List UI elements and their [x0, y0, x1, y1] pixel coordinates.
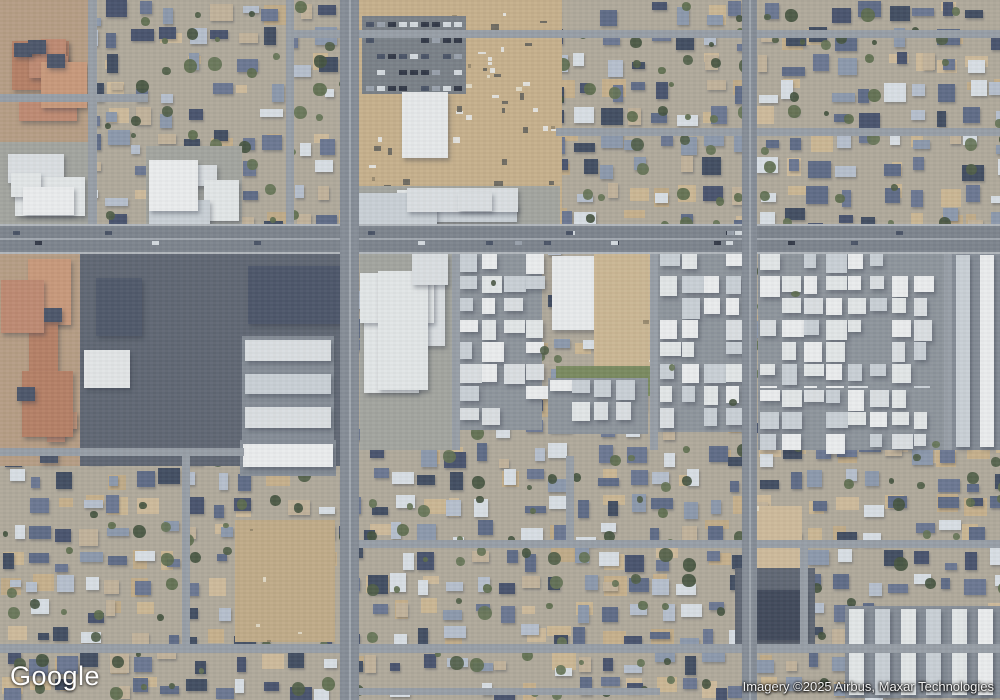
apartment-roof [682, 320, 698, 338]
street [290, 30, 1000, 38]
tree [456, 557, 465, 566]
tree [133, 525, 146, 538]
apartment-roof [460, 276, 477, 289]
house-roof [295, 185, 304, 198]
tree [418, 505, 430, 517]
parked-car [454, 22, 462, 27]
house-roof [585, 575, 597, 590]
house-roof [766, 140, 779, 148]
house-roof [262, 135, 281, 150]
apartment-roof [892, 342, 905, 362]
apartment-roof [760, 390, 780, 401]
apartment-roof [504, 364, 525, 384]
dark-roof [17, 387, 35, 401]
house-roof [598, 478, 619, 485]
apartment-roof [526, 364, 544, 380]
tree [821, 40, 831, 50]
debris [468, 64, 471, 68]
parked-car [399, 54, 407, 59]
house-roof [131, 145, 141, 154]
tree [573, 473, 581, 481]
tree [472, 476, 485, 489]
house-roof [324, 659, 337, 669]
house-roof [444, 626, 466, 638]
house-roof [392, 472, 413, 484]
house-roof [832, 93, 855, 102]
house-roof [707, 551, 720, 561]
house-roof [991, 212, 1000, 225]
dirt-lot [235, 520, 335, 642]
apartment-roof [482, 320, 496, 340]
house-roof [941, 578, 950, 589]
parked-car [410, 70, 418, 75]
apartment-roof [526, 254, 544, 274]
house-roof [808, 550, 829, 565]
sidewalk [0, 252, 1000, 254]
vehicle [368, 231, 375, 235]
house-roof [55, 529, 71, 542]
vehicle [566, 231, 573, 235]
house-roof [683, 678, 696, 688]
tree [478, 606, 492, 620]
house-roof [685, 656, 696, 675]
house-roof [650, 632, 670, 639]
tree [637, 659, 645, 667]
commercial-roof [458, 192, 492, 212]
apartment-roof [682, 364, 699, 383]
house-roof [372, 507, 388, 515]
house-roof [213, 83, 233, 95]
parked-car [443, 86, 451, 91]
tree [166, 578, 178, 590]
vehicle [714, 241, 721, 245]
apartment-roof [726, 408, 744, 425]
apartment-roof [914, 276, 934, 292]
tree [141, 684, 147, 690]
apartment-roof [726, 364, 743, 382]
satellite-map-viewport[interactable]: Google Imagery ©2025 Airbus, Maxar Techn… [0, 0, 1000, 700]
tree [683, 446, 690, 453]
house-roof [859, 113, 880, 129]
tree [162, 67, 171, 76]
house-roof [759, 95, 777, 103]
house-roof [10, 469, 25, 481]
apartment-roof [826, 342, 845, 362]
house-roof [807, 470, 821, 487]
apartment-roof [782, 276, 801, 292]
house-roof [189, 109, 203, 121]
google-logo[interactable]: Google [10, 661, 100, 692]
tree [294, 503, 303, 512]
house-roof [264, 27, 276, 45]
house-roof [288, 651, 305, 668]
tree [764, 14, 770, 20]
tree [273, 53, 280, 60]
tree [706, 145, 716, 155]
house-roof [163, 8, 173, 24]
apartment-roof [660, 276, 677, 296]
apartment-roof [460, 342, 472, 359]
tree [66, 547, 73, 554]
house-roof [499, 459, 509, 467]
house-roof [210, 4, 232, 21]
house-roof [968, 60, 985, 73]
tree [785, 9, 798, 22]
apartment-roof [892, 276, 908, 297]
house-roof [320, 139, 335, 155]
house-roof [443, 610, 462, 620]
yard-patch [836, 497, 859, 510]
house-roof [913, 140, 930, 149]
house-roof [53, 627, 68, 640]
house-roof [760, 454, 774, 467]
parked-car [443, 54, 451, 59]
house-roof [584, 159, 598, 175]
storage-item [540, 21, 546, 24]
house-roof [238, 474, 251, 491]
dirt-lot [594, 254, 652, 366]
tree [967, 472, 979, 484]
tree [711, 58, 721, 68]
tree [131, 116, 141, 126]
house-roof [912, 84, 925, 96]
apartment-roof [804, 390, 824, 402]
tree [630, 37, 642, 49]
house-roof [554, 339, 570, 349]
house-roof [504, 469, 516, 484]
house-roof [786, 661, 797, 672]
tree [187, 28, 198, 39]
dark-roof [47, 54, 65, 68]
house-roof [135, 551, 155, 561]
tree [110, 687, 124, 700]
tree [682, 574, 695, 587]
apartment-roof [804, 298, 823, 314]
debris [298, 632, 302, 634]
house-roof [652, 579, 668, 595]
house-roof [789, 159, 799, 171]
house-roof [424, 654, 436, 668]
apartment-roof [550, 380, 572, 391]
street [0, 448, 244, 456]
apartment-roof [682, 298, 700, 319]
parked-car [377, 70, 385, 75]
house-roof [884, 164, 901, 176]
house-roof [684, 502, 698, 518]
apartment-roof [482, 254, 497, 269]
street [182, 456, 190, 646]
tree [800, 39, 806, 45]
apartment-roof [892, 412, 909, 425]
tree [709, 42, 715, 48]
tree [628, 455, 634, 461]
house-roof [813, 501, 827, 511]
debris [267, 640, 272, 642]
house-roof [578, 500, 589, 518]
apartment-roof [848, 298, 866, 314]
debris [250, 529, 254, 531]
storage-item [502, 108, 505, 114]
house-roof [325, 89, 334, 97]
house-roof [140, 1, 153, 14]
tree [760, 191, 770, 201]
vehicle [544, 241, 551, 245]
house-roof [631, 470, 648, 485]
apartment-roof [594, 402, 608, 420]
apartment-roof [504, 298, 523, 311]
tree [397, 524, 409, 536]
tree [658, 106, 668, 116]
sidewalk [0, 224, 1000, 226]
house-roof [105, 198, 128, 206]
tree [90, 511, 97, 518]
apartment-roof [914, 298, 927, 316]
building-roof [552, 256, 598, 330]
house-roof [243, 191, 259, 200]
apartment-roof [804, 342, 822, 362]
house-roof [608, 183, 618, 197]
apartment-roof [870, 364, 886, 376]
parked-car [454, 38, 462, 43]
tree [658, 508, 668, 518]
tree [476, 496, 484, 504]
apartment-roof [704, 298, 720, 314]
yard-patch [421, 598, 436, 613]
house-roof [450, 472, 463, 489]
house-roof [991, 37, 1000, 50]
tree [995, 119, 1000, 128]
tree [522, 548, 532, 558]
vehicle [13, 231, 20, 235]
lane-stripe [349, 0, 351, 700]
house-roof [108, 130, 130, 144]
street [348, 688, 660, 695]
house-roof [923, 53, 935, 69]
house-roof [501, 606, 516, 623]
apartment-roof [804, 364, 824, 376]
house-roof [390, 663, 399, 671]
storage-item [491, 24, 499, 30]
house-roof [912, 8, 934, 16]
house-roof [681, 156, 693, 172]
apartment-roof [760, 254, 780, 270]
tree [965, 138, 977, 150]
house-roof [996, 145, 1000, 154]
tree [407, 503, 414, 510]
house-roof [865, 471, 879, 486]
apartment-roof [826, 254, 847, 273]
parked-car [454, 70, 462, 75]
house-roof [603, 658, 613, 671]
house-roof [782, 67, 805, 76]
satellite-imagery-canvas[interactable] [0, 0, 1000, 700]
tree [223, 547, 231, 555]
tree [661, 482, 672, 493]
apartment-roof [826, 320, 847, 340]
house-roof [403, 553, 415, 570]
house-roof [29, 526, 51, 539]
house-roof [652, 2, 667, 10]
house-roof [938, 84, 955, 102]
house-roof [833, 574, 849, 589]
house-roof [315, 160, 332, 172]
apartment-roof [460, 298, 473, 311]
house-roof [318, 186, 328, 200]
house-roof [494, 661, 506, 670]
house-roof [446, 582, 463, 591]
apartment-roof [460, 408, 479, 420]
storage-item [492, 95, 499, 98]
house-roof [293, 65, 310, 77]
apartment-roof [848, 412, 866, 425]
apartment-roof [682, 276, 704, 293]
storage-item [403, 179, 410, 185]
house-roof [86, 577, 99, 590]
house-roof [583, 340, 594, 348]
apartment-roof [826, 434, 845, 454]
apartment-roof [914, 412, 927, 429]
tree [546, 603, 552, 609]
street [556, 128, 1000, 136]
tree [247, 68, 257, 78]
storage-item [502, 101, 508, 105]
tree [184, 59, 197, 72]
tree [658, 67, 666, 75]
house-roof [574, 107, 594, 122]
house-roof [890, 6, 910, 20]
storage-item [488, 62, 492, 65]
tree [682, 2, 691, 11]
house-roof [602, 607, 618, 623]
building-roof [84, 350, 130, 388]
tree [966, 164, 977, 175]
apartment-roof [782, 320, 804, 337]
parked-car [421, 38, 429, 43]
tree [586, 214, 595, 223]
parked-car [410, 54, 418, 59]
apartment-roof [848, 390, 864, 411]
debris [516, 87, 522, 91]
house-roof [608, 501, 618, 516]
tree [30, 599, 40, 609]
house-roof [728, 1, 740, 16]
apartment-roof [616, 380, 635, 400]
tree [952, 7, 961, 16]
house-roof [573, 53, 584, 66]
street [286, 0, 294, 228]
apartment-roof [760, 364, 775, 375]
tree [923, 530, 932, 539]
tree [443, 450, 456, 463]
house-roof [219, 608, 231, 621]
house-roof [104, 580, 119, 594]
apartment-roof [848, 254, 863, 269]
parked-car [432, 86, 440, 91]
vehicle [735, 231, 742, 235]
parked-car [454, 54, 462, 59]
parked-car [377, 86, 385, 91]
tree [8, 607, 20, 619]
house-roof [808, 161, 830, 178]
yard-patch [788, 186, 806, 196]
house-roof [681, 604, 702, 617]
tree [710, 115, 717, 122]
house-roof [897, 52, 906, 64]
house-roof [869, 583, 882, 596]
parked-car [366, 22, 374, 27]
parked-car [421, 86, 429, 91]
apartment-roof [704, 364, 726, 383]
tree [325, 42, 335, 52]
tree [583, 189, 594, 200]
house-roof [913, 157, 924, 170]
tree [677, 188, 690, 201]
apartment-roof [460, 254, 477, 272]
apartment-roof [460, 364, 482, 383]
vehicle [105, 231, 112, 235]
tree [223, 523, 229, 529]
tree [764, 161, 776, 173]
tree [683, 55, 692, 64]
apartment-roof [870, 412, 887, 427]
apartment-roof [482, 408, 500, 425]
apartment-roof [682, 342, 694, 357]
tree [162, 38, 168, 44]
tree [683, 558, 696, 571]
house-roof [599, 552, 620, 566]
apartment-roof [660, 342, 681, 356]
tree [456, 598, 462, 604]
house-roof [991, 196, 1000, 203]
debris [256, 624, 260, 626]
house-roof [603, 37, 620, 45]
street [944, 252, 952, 450]
yard-patch [236, 85, 247, 94]
lane-stripe [0, 238, 1000, 240]
tree [844, 114, 854, 124]
tree [470, 658, 484, 672]
house-roof [661, 136, 673, 146]
apartment-roof [848, 276, 861, 290]
tree [61, 609, 67, 615]
house-roof [111, 83, 123, 90]
house-roof [135, 581, 152, 595]
tree [917, 482, 924, 489]
yard-patch [624, 210, 645, 218]
house-roof [522, 576, 540, 588]
house-roof [809, 651, 818, 667]
tree [584, 83, 596, 95]
yard-patch [522, 606, 535, 614]
apartment-roof [504, 320, 525, 333]
tree [598, 194, 605, 201]
house-roof [758, 55, 767, 72]
apartment-roof [760, 276, 780, 297]
house-roof [600, 165, 614, 179]
rowhouse-roof [245, 407, 331, 428]
tree [108, 522, 116, 530]
rowhouse-roof [243, 444, 333, 466]
vehicle [611, 241, 618, 245]
tree [195, 12, 201, 18]
apartment-roof [804, 320, 819, 335]
house-roof [939, 520, 962, 530]
apartment-roof [914, 320, 932, 341]
house-roof [760, 480, 778, 489]
house-roof [374, 468, 389, 477]
storage-item [457, 106, 461, 112]
rowhouse-roof [245, 340, 331, 361]
